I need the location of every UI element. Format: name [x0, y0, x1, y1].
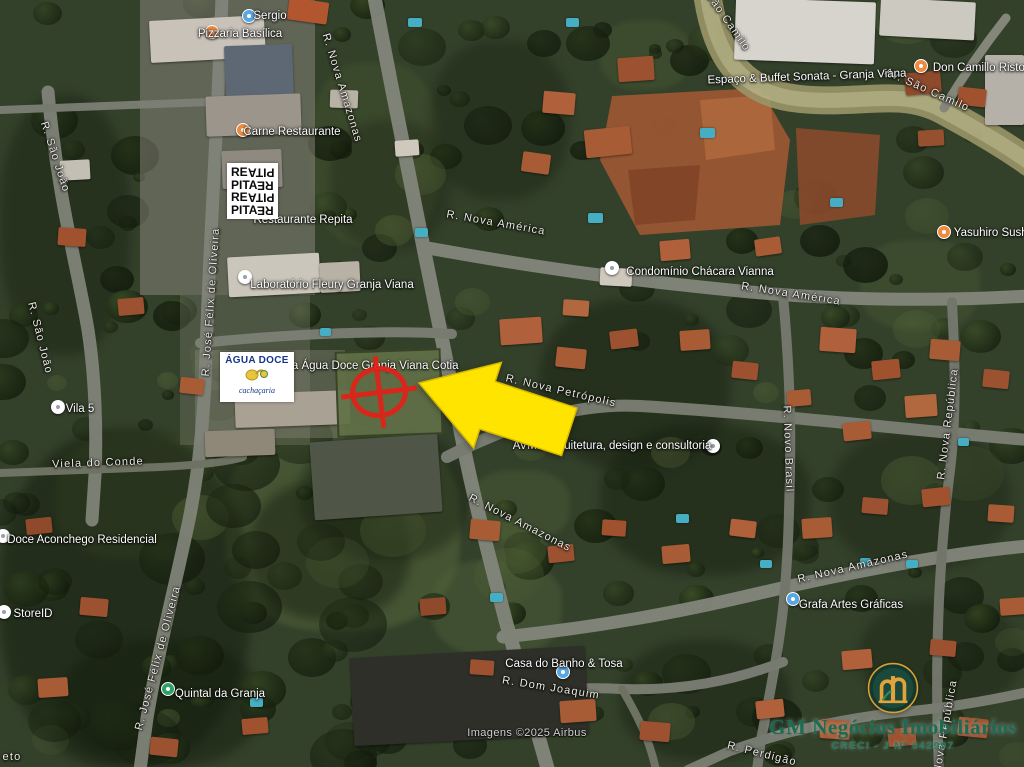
- poi-label: Vila 5: [66, 403, 95, 415]
- white-poi-icon: [605, 261, 619, 275]
- repita-logo: REPITAPITAREREPITAPITARE: [227, 163, 278, 219]
- gm-creci-number: CRECI - J Nº 042997: [762, 740, 1024, 752]
- satellite-map: R. Nova AmazonasR. Nova AméricaR. Nova A…: [0, 0, 1024, 767]
- poi-label: Laboratório Fleury Granja Viana: [250, 279, 413, 291]
- white-poi-icon: [0, 605, 11, 619]
- poi-label: Yasuhiro Sushi: [954, 227, 1024, 239]
- orange-poi-icon: [914, 59, 928, 73]
- agua-doce-subtitle: cachaçaria: [220, 386, 294, 395]
- poi-label: Quintal da Granja: [175, 688, 265, 700]
- poi-label: StoreID: [14, 608, 53, 620]
- poi-label: Espaço & Buffet Sonata - Granja Viana: [707, 68, 906, 87]
- repita-logo-row: PITARE: [231, 204, 274, 217]
- agua-doce-still-icon: [244, 366, 270, 381]
- white-poi-icon: [51, 400, 65, 414]
- poi-label: Sergio: [253, 10, 286, 22]
- gm-badge-icon: [867, 662, 919, 714]
- agua-doce-logo: ÁGUA DOCE cachaçaria: [220, 352, 294, 402]
- poi-label: Don Camillo Ristorante: [933, 62, 1024, 74]
- poi-label: Grafa Artes Gráficas: [799, 599, 903, 611]
- poi-label: Casa do Banho & Tosa: [505, 658, 622, 670]
- map-attribution: Imagens ©2025 Airbus: [467, 727, 586, 739]
- poi-label: Carne Restaurante: [243, 126, 340, 138]
- gm-realty-logo: GM Negócios Imobiliários CRECI - J Nº 04…: [762, 662, 1024, 752]
- poi-label: Condomínio Chácara Vianna: [626, 266, 773, 278]
- blue-poi-icon: [786, 592, 800, 606]
- poi-label: AVMS arquitetura, design e consultoria: [513, 440, 712, 452]
- agua-doce-title: ÁGUA DOCE: [220, 355, 294, 367]
- gm-company-name: GM Negócios Imobiliários: [762, 715, 1024, 740]
- poi-labels-layer: SergioPizzaria BasílicaCarne Restaurante…: [0, 0, 1024, 767]
- poi-label: Doce Aconchego Residencial: [7, 534, 157, 546]
- green-poi-icon: [161, 682, 175, 696]
- poi-label: Pizzaria Basílica: [198, 28, 282, 40]
- orange-poi-icon: [937, 225, 951, 239]
